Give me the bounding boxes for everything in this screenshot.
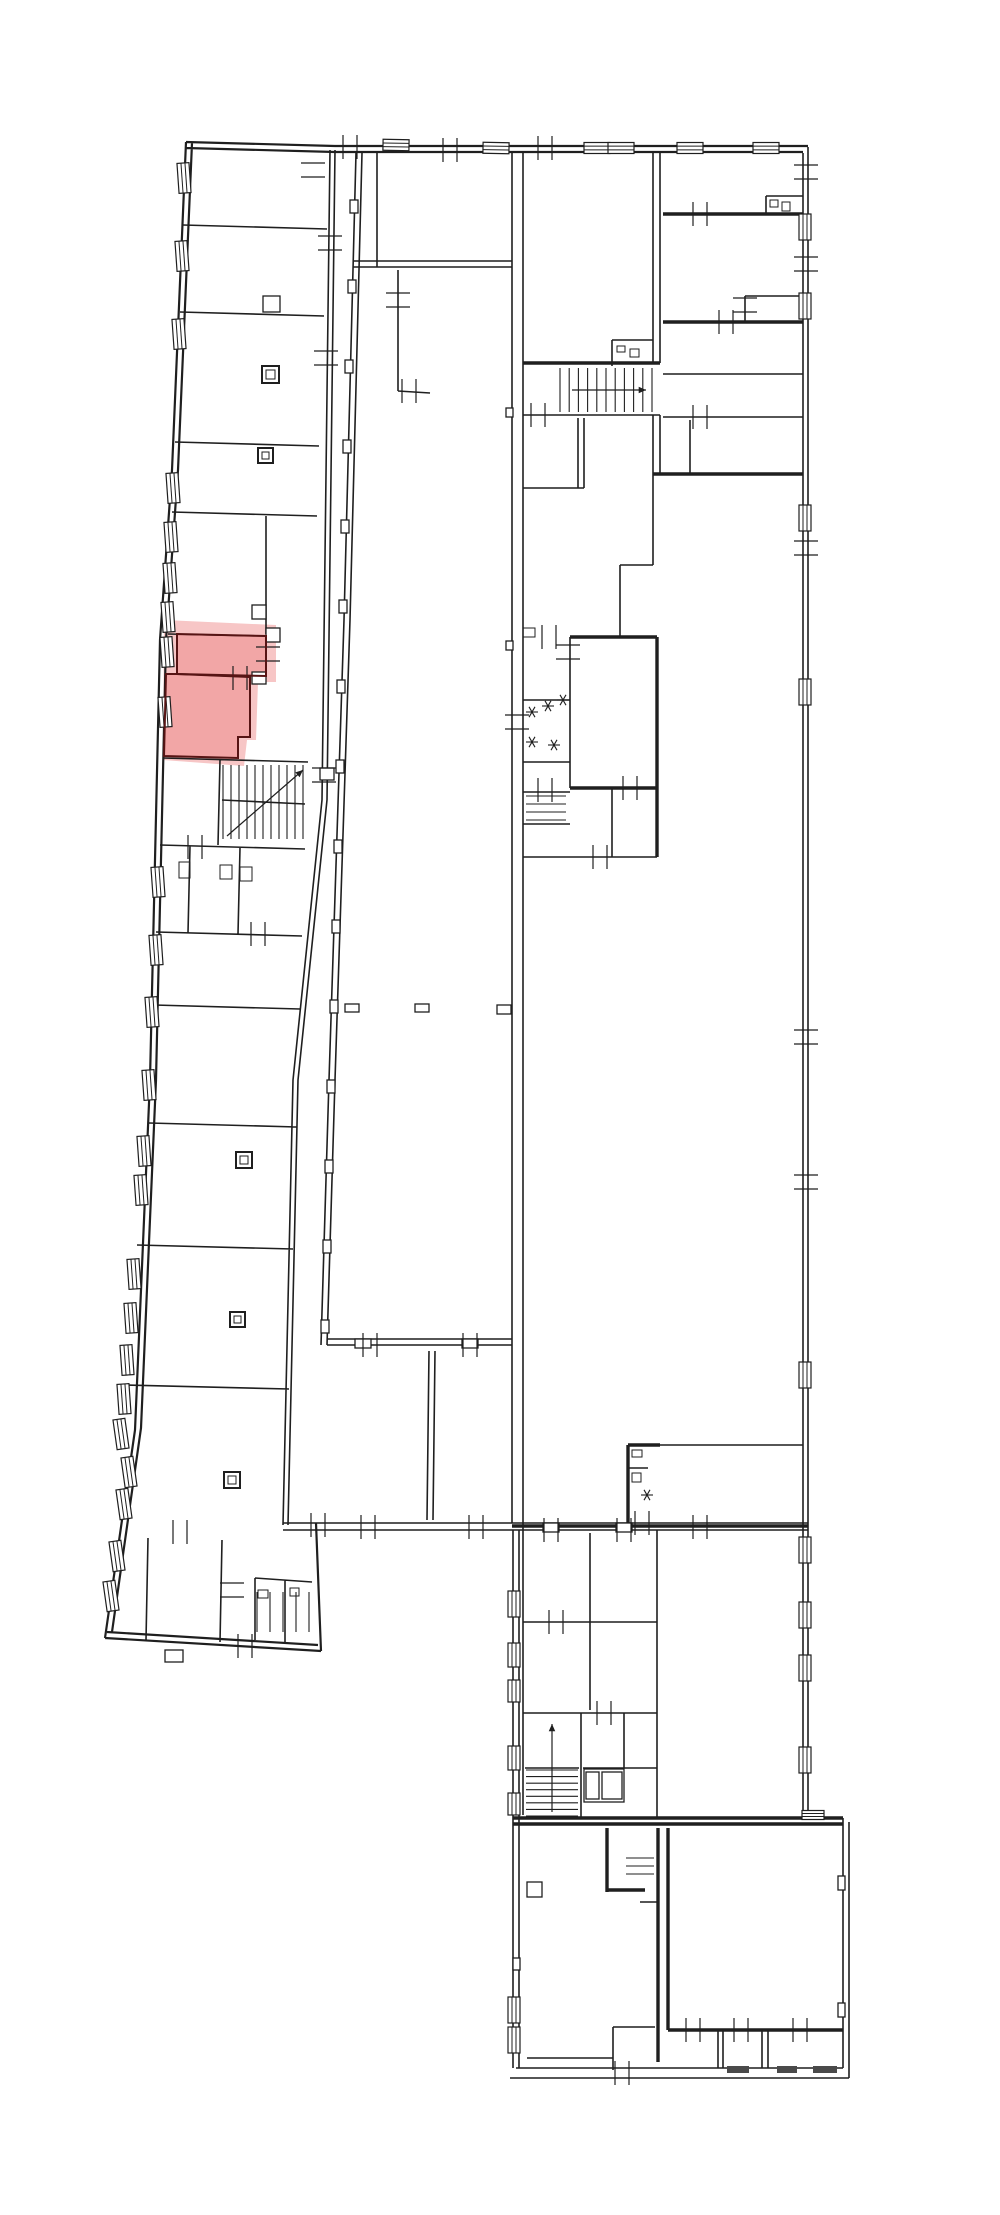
window-icon (142, 1070, 156, 1101)
window-icon (799, 1537, 811, 1563)
paper-background (0, 0, 1000, 2215)
window-icon (177, 163, 191, 194)
door-pilaster-rect (252, 672, 266, 684)
door-pilaster-rect (838, 1876, 845, 1890)
window-icon (799, 293, 811, 319)
window-icon (799, 1747, 811, 1773)
bottom-window-bar (727, 2066, 749, 2073)
window-icon (508, 1793, 520, 1815)
door-pilaster-rect (345, 360, 353, 373)
window-icon (508, 1746, 520, 1770)
column-icon (230, 1312, 245, 1327)
window-icon (172, 319, 186, 350)
window-icon (753, 143, 779, 154)
door-pilaster-rect (513, 1958, 520, 1970)
door-pilaster-rect (323, 1240, 331, 1253)
door-pilaster-rect (616, 1523, 632, 1532)
column-icon (236, 1152, 252, 1168)
window-icon (799, 1362, 811, 1388)
window-icon (163, 563, 177, 594)
floor-plan (0, 0, 1000, 2215)
bottom-window-bar (777, 2066, 797, 2073)
window-icon (508, 1680, 520, 1702)
window-icon (166, 473, 180, 504)
window-icon (117, 1384, 131, 1415)
window-icon (124, 1303, 138, 1334)
door-pilaster-rect (506, 408, 513, 417)
window-icon (161, 602, 175, 633)
door-pilaster-rect (330, 1000, 338, 1013)
column-icon (258, 448, 273, 463)
door-pilaster-rect (341, 520, 349, 533)
window-icon (137, 1136, 151, 1167)
window-icon (799, 214, 811, 240)
window-icon (508, 2027, 520, 2053)
highlighted-room[interactable] (177, 634, 266, 676)
window-icon (164, 522, 178, 553)
door-pilaster-rect (266, 628, 280, 642)
door-pilaster-rect (263, 296, 280, 312)
door-pilaster-rect (321, 1320, 329, 1333)
door-pilaster-rect (348, 280, 356, 293)
bottom-window-bar (813, 2066, 837, 2073)
window-icon (584, 143, 610, 154)
door-pilaster-rect (602, 1772, 622, 1799)
window-icon (799, 1655, 811, 1681)
door-pilaster-rect (332, 920, 340, 933)
window-icon (799, 679, 811, 705)
window-icon (508, 1591, 520, 1617)
door-pilaster-rect (327, 1080, 335, 1093)
darkbar-layer (727, 2066, 837, 2073)
window-icon (799, 505, 811, 531)
door-pilaster-rect (415, 1004, 429, 1012)
door-pilaster-rect (325, 1160, 333, 1173)
window-icon (145, 997, 159, 1028)
door-pilaster-rect (345, 1004, 359, 1012)
floor-plan-canvas (0, 0, 1000, 2215)
window-icon (383, 139, 409, 150)
door-pilaster-rect (336, 760, 344, 773)
window-icon (127, 1259, 141, 1290)
window-icon (160, 637, 174, 668)
door-pilaster-rect (337, 680, 345, 693)
column-icon (262, 366, 279, 383)
door-pilaster-rect (586, 1772, 599, 1799)
door-pilaster-rect (165, 1650, 183, 1662)
door-pilaster-rect (343, 440, 351, 453)
door-pilaster-rect (350, 200, 358, 213)
door-pilaster-rect (320, 768, 334, 780)
window-icon (149, 935, 163, 966)
window-icon (483, 142, 509, 153)
window-icon (120, 1345, 134, 1376)
door-pilaster-rect (252, 605, 266, 619)
door-pilaster-rect (838, 2003, 845, 2017)
window-icon (802, 1811, 824, 1820)
door-pilaster-rect (339, 600, 347, 613)
window-icon (608, 143, 634, 154)
window-icon (677, 143, 703, 154)
window-icon (508, 1997, 520, 2023)
window-icon (175, 241, 189, 272)
column-icon (224, 1472, 240, 1488)
window-icon (134, 1175, 148, 1206)
window-icon (151, 867, 165, 898)
door-pilaster-rect (497, 1005, 511, 1014)
window-icon (508, 1643, 520, 1667)
door-pilaster-rect (334, 840, 342, 853)
window-icon (799, 1602, 811, 1628)
door-pilaster-rect (527, 1882, 542, 1897)
door-pilaster-rect (462, 1339, 478, 1348)
door-pilaster-rect (506, 641, 513, 650)
door-pilaster-rect (543, 1523, 559, 1532)
